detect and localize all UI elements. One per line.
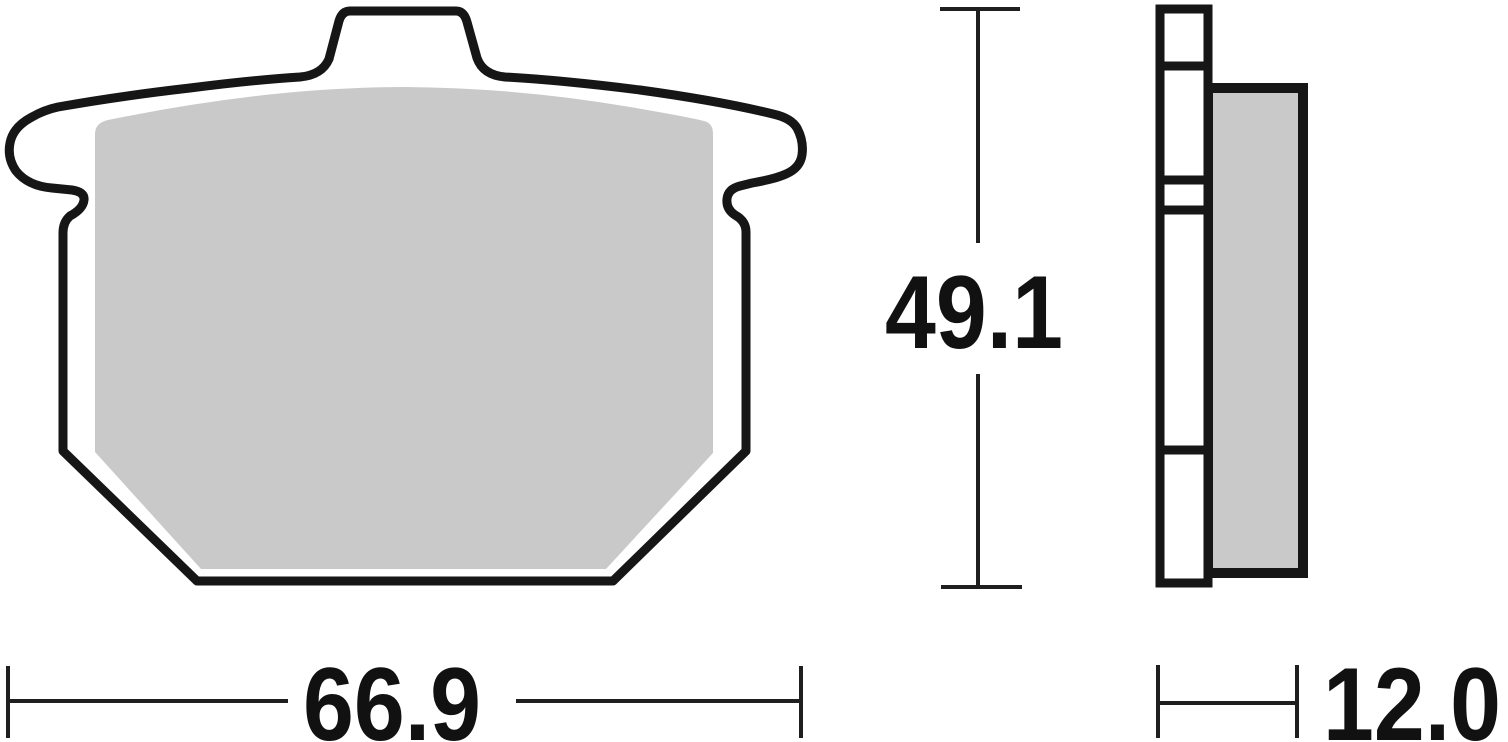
front-view [9,11,802,581]
width-dimension: 66.9 [8,646,801,742]
technical-drawing-page: 66.9 49.1 12.0 [0,0,1508,742]
thickness-dimension: 12.0 [1158,646,1501,742]
width-dimension-label: 66.9 [303,646,481,742]
side-view-friction-pad [1208,88,1303,573]
front-view-friction-pad [95,87,713,569]
brake-pad-drawing-canvas: 66.9 49.1 12.0 [0,0,1508,742]
height-dimension-label: 49.1 [885,254,1063,371]
height-dimension: 49.1 [885,9,1063,587]
thickness-dimension-label: 12.0 [1323,646,1501,742]
side-view [1156,9,1303,583]
side-view-backplate [1160,9,1208,583]
